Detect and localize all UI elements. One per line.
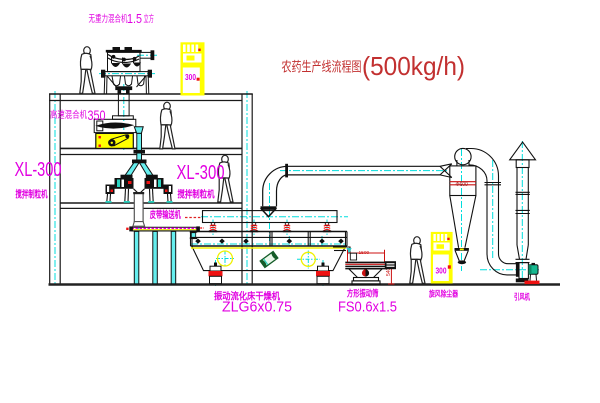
svg-text:ZLG6x0.75: ZLG6x0.75 [222,299,292,316]
svg-text:无重力混合机: 无重力混合机 [89,13,128,25]
svg-text:(500kg/h): (500kg/h) [362,51,465,81]
svg-text:FS0.6x1.5: FS0.6x1.5 [338,299,397,316]
svg-text:方形振动筛: 方形振动筛 [347,288,379,299]
svg-text:XL-300: XL-300 [15,159,62,181]
svg-text:1.5: 1.5 [127,11,142,26]
svg-text:XL-300: XL-300 [177,162,225,184]
svg-text:立方: 立方 [144,13,155,25]
svg-text:农药生产线流程图: 农药生产线流程图 [282,60,362,75]
svg-text:高速混合机: 高速混合机 [50,109,87,121]
svg-text:300: 300 [185,72,196,82]
svg-text:旋风除尘器: 旋风除尘器 [428,289,458,299]
svg-text:搅拌制粒机: 搅拌制粒机 [16,189,48,201]
svg-text:300: 300 [436,265,447,275]
svg-text:皮带输送机: 皮带输送机 [149,209,181,221]
svg-text:Φ600: Φ600 [456,182,469,188]
svg-text:1500: 1500 [359,250,370,256]
svg-text:引风机: 引风机 [514,292,530,302]
svg-text:350: 350 [88,107,106,123]
svg-text:搅拌制粒机: 搅拌制粒机 [178,189,215,201]
